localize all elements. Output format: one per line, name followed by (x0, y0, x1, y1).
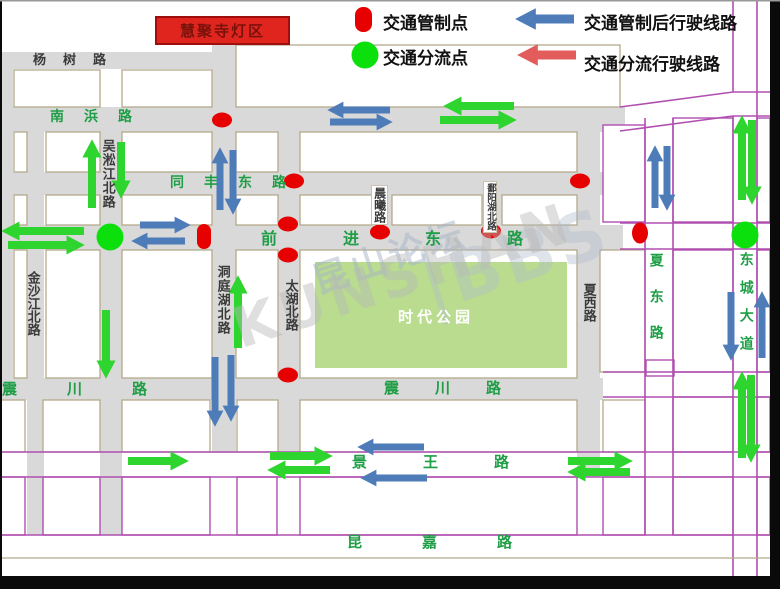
control-point (570, 174, 590, 189)
road-label-poyanghu: 鄱阳湖北路 (483, 181, 497, 233)
road-label-jingwang: 景王路 (352, 455, 565, 471)
road-label-nanbang: 南浜路 (50, 110, 152, 125)
road-label-dongcheng: 东城大道 (738, 252, 753, 364)
road-label-taihu: 太湖北路 (283, 279, 297, 331)
legend-label-diversion-point: 交通分流点 (383, 44, 468, 69)
road-label-xiadong: 夏东路 (648, 253, 663, 361)
legend-red-oval-icon (355, 7, 372, 32)
road-label-qianjin: 前进东路 (261, 231, 589, 248)
traffic-control-map: 昆山论坛 BBS KUNSHAN 交通管制点 交通管制后行驶线路 交通分流点 交… (0, 0, 780, 589)
control-point (278, 368, 298, 383)
control-point-pill (197, 224, 211, 249)
road-label-jinshajiang: 金沙江北路 (25, 271, 39, 336)
park-label: 时代公园 (398, 306, 474, 327)
road-label-zhenchuan-mid: 震川路 (384, 381, 537, 397)
road-label-chenxi: 晨曦路 (371, 185, 388, 225)
diversion-point (97, 224, 124, 251)
legend-label-diversion-route: 交通分流行驶线路 (584, 50, 720, 75)
lantern-area-box: 慧聚寺灯区 (155, 16, 290, 45)
road-label-wusongjiang: 吴淞江北路 (100, 139, 114, 209)
road-label-dongtinghu: 洞庭湖北路 (215, 265, 229, 335)
road-label-zhenchuan-west: 震川路 (2, 382, 197, 398)
legend-label-control-route: 交通管制后行驶线路 (584, 9, 737, 34)
diversion-point (732, 222, 759, 249)
control-point (212, 113, 232, 128)
road-label-tongfeng: 同丰东路 (170, 176, 306, 191)
road-label-yangshu: 杨树路 (33, 54, 123, 68)
road-label-xiaxi: 夏西路 (581, 283, 595, 322)
control-point (278, 248, 298, 263)
legend-label-control-point: 交通管制点 (383, 9, 468, 34)
legend-green-circle-icon (352, 42, 379, 69)
control-point-vertical (632, 223, 648, 244)
road-label-kunjia: 昆嘉路 (347, 535, 572, 551)
